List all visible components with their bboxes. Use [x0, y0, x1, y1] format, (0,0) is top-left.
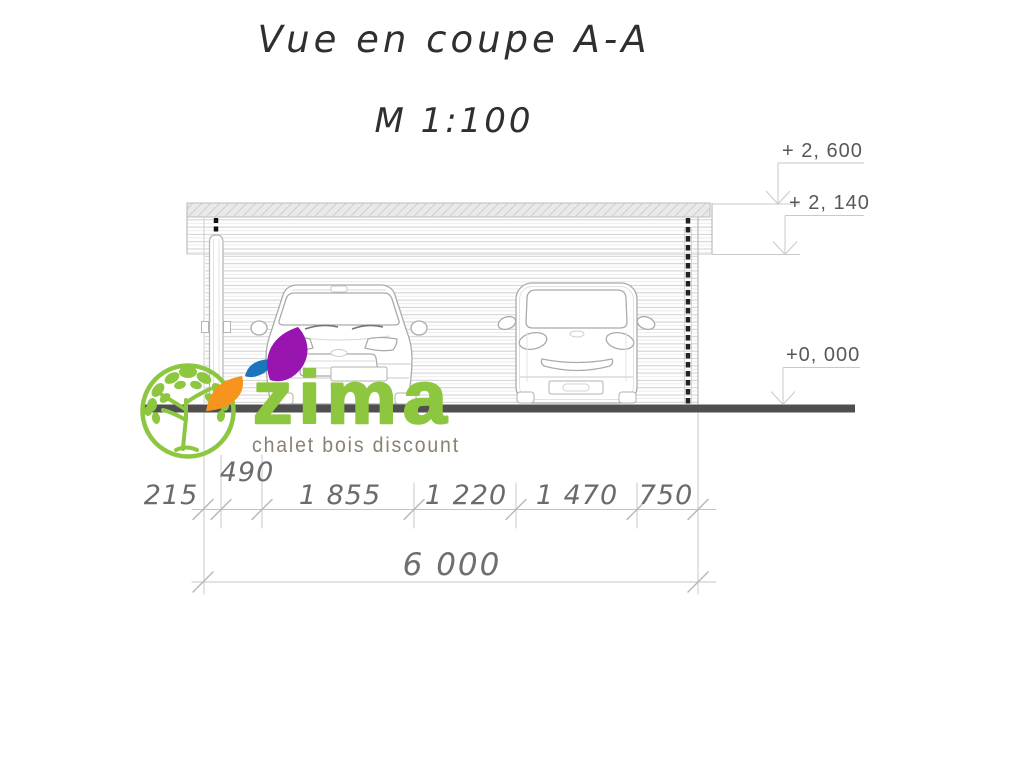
dim-label-1220: 1 220 — [425, 480, 507, 511]
logo-tagline-text: chalet bois discount — [252, 434, 460, 457]
car-suv-mirror-right — [411, 321, 427, 335]
drawing-title: Vue en coupe A-A — [257, 18, 650, 61]
post-bracket-right — [224, 322, 231, 333]
drawing-scale: M 1:100 — [374, 101, 533, 141]
elevation-marker-eave: + 2, 140 — [712, 192, 870, 255]
car-compact-license-plate — [549, 381, 603, 394]
section-drawing-canvas: + 2, 600 + 2, 140 +0, 000 — [0, 0, 1024, 768]
dim-label-1470: 1 470 — [536, 480, 618, 511]
car-compact-badge — [570, 331, 584, 337]
elevation-marker-ground: +0, 000 — [771, 344, 860, 405]
car-suv-headlight-right — [365, 338, 397, 351]
dim-label-750: 750 — [639, 480, 694, 511]
dim-label-215: 215 — [144, 480, 199, 511]
elevation-label-2600: + 2, 600 — [782, 140, 863, 162]
elevation-label-0000: +0, 000 — [786, 344, 860, 366]
dim-label-490: 490 — [220, 457, 275, 488]
elevation-label-2140: + 2, 140 — [789, 192, 870, 214]
car-compact — [496, 283, 656, 403]
car-suv-mirror-left — [251, 321, 267, 335]
car-compact-wheel-right — [619, 392, 636, 403]
car-suv-windshield — [279, 293, 399, 325]
car-compact-windshield — [526, 290, 627, 328]
car-suv-roof-antenna — [331, 286, 347, 292]
post-bracket-left — [202, 322, 209, 333]
dim-label-total-6000: 6 000 — [403, 547, 502, 583]
roof-eave-boards — [187, 217, 712, 254]
dim-label-1855: 1 855 — [299, 480, 381, 511]
car-compact-wheel-left — [517, 392, 534, 403]
roof-fascia-beam — [187, 203, 710, 217]
ground-line — [143, 405, 855, 413]
logo-brand-text: zima — [253, 356, 453, 439]
technical-drawing-page: + 2, 600 + 2, 140 +0, 000 — [0, 0, 1024, 768]
